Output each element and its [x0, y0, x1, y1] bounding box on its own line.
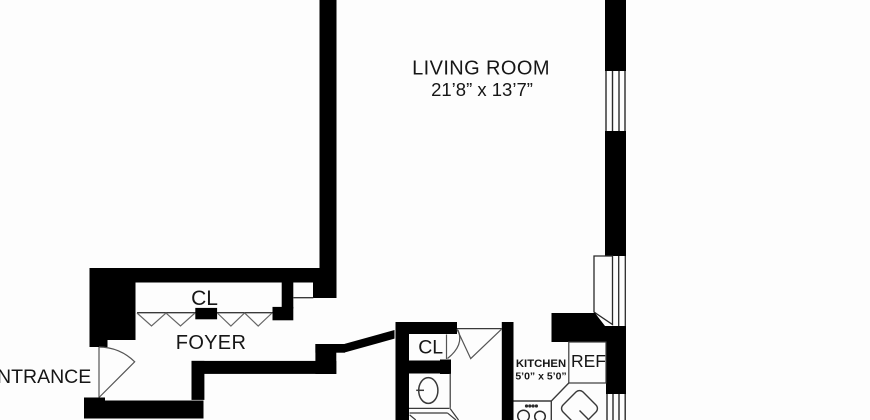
svg-text:CL: CL: [418, 337, 443, 359]
svg-text:LIVING ROOM: LIVING ROOM: [412, 58, 550, 80]
svg-text:ENTRANCE: ENTRANCE: [0, 366, 91, 388]
svg-text:5’0” x 5’0”: 5’0” x 5’0”: [515, 371, 566, 383]
svg-text:FOYER: FOYER: [176, 332, 246, 354]
svg-text:REF: REF: [571, 351, 606, 371]
svg-text:21’8” x 13’7”: 21’8” x 13’7”: [431, 79, 533, 100]
svg-text:CL: CL: [191, 287, 218, 310]
svg-text:KITCHEN: KITCHEN: [516, 358, 566, 370]
